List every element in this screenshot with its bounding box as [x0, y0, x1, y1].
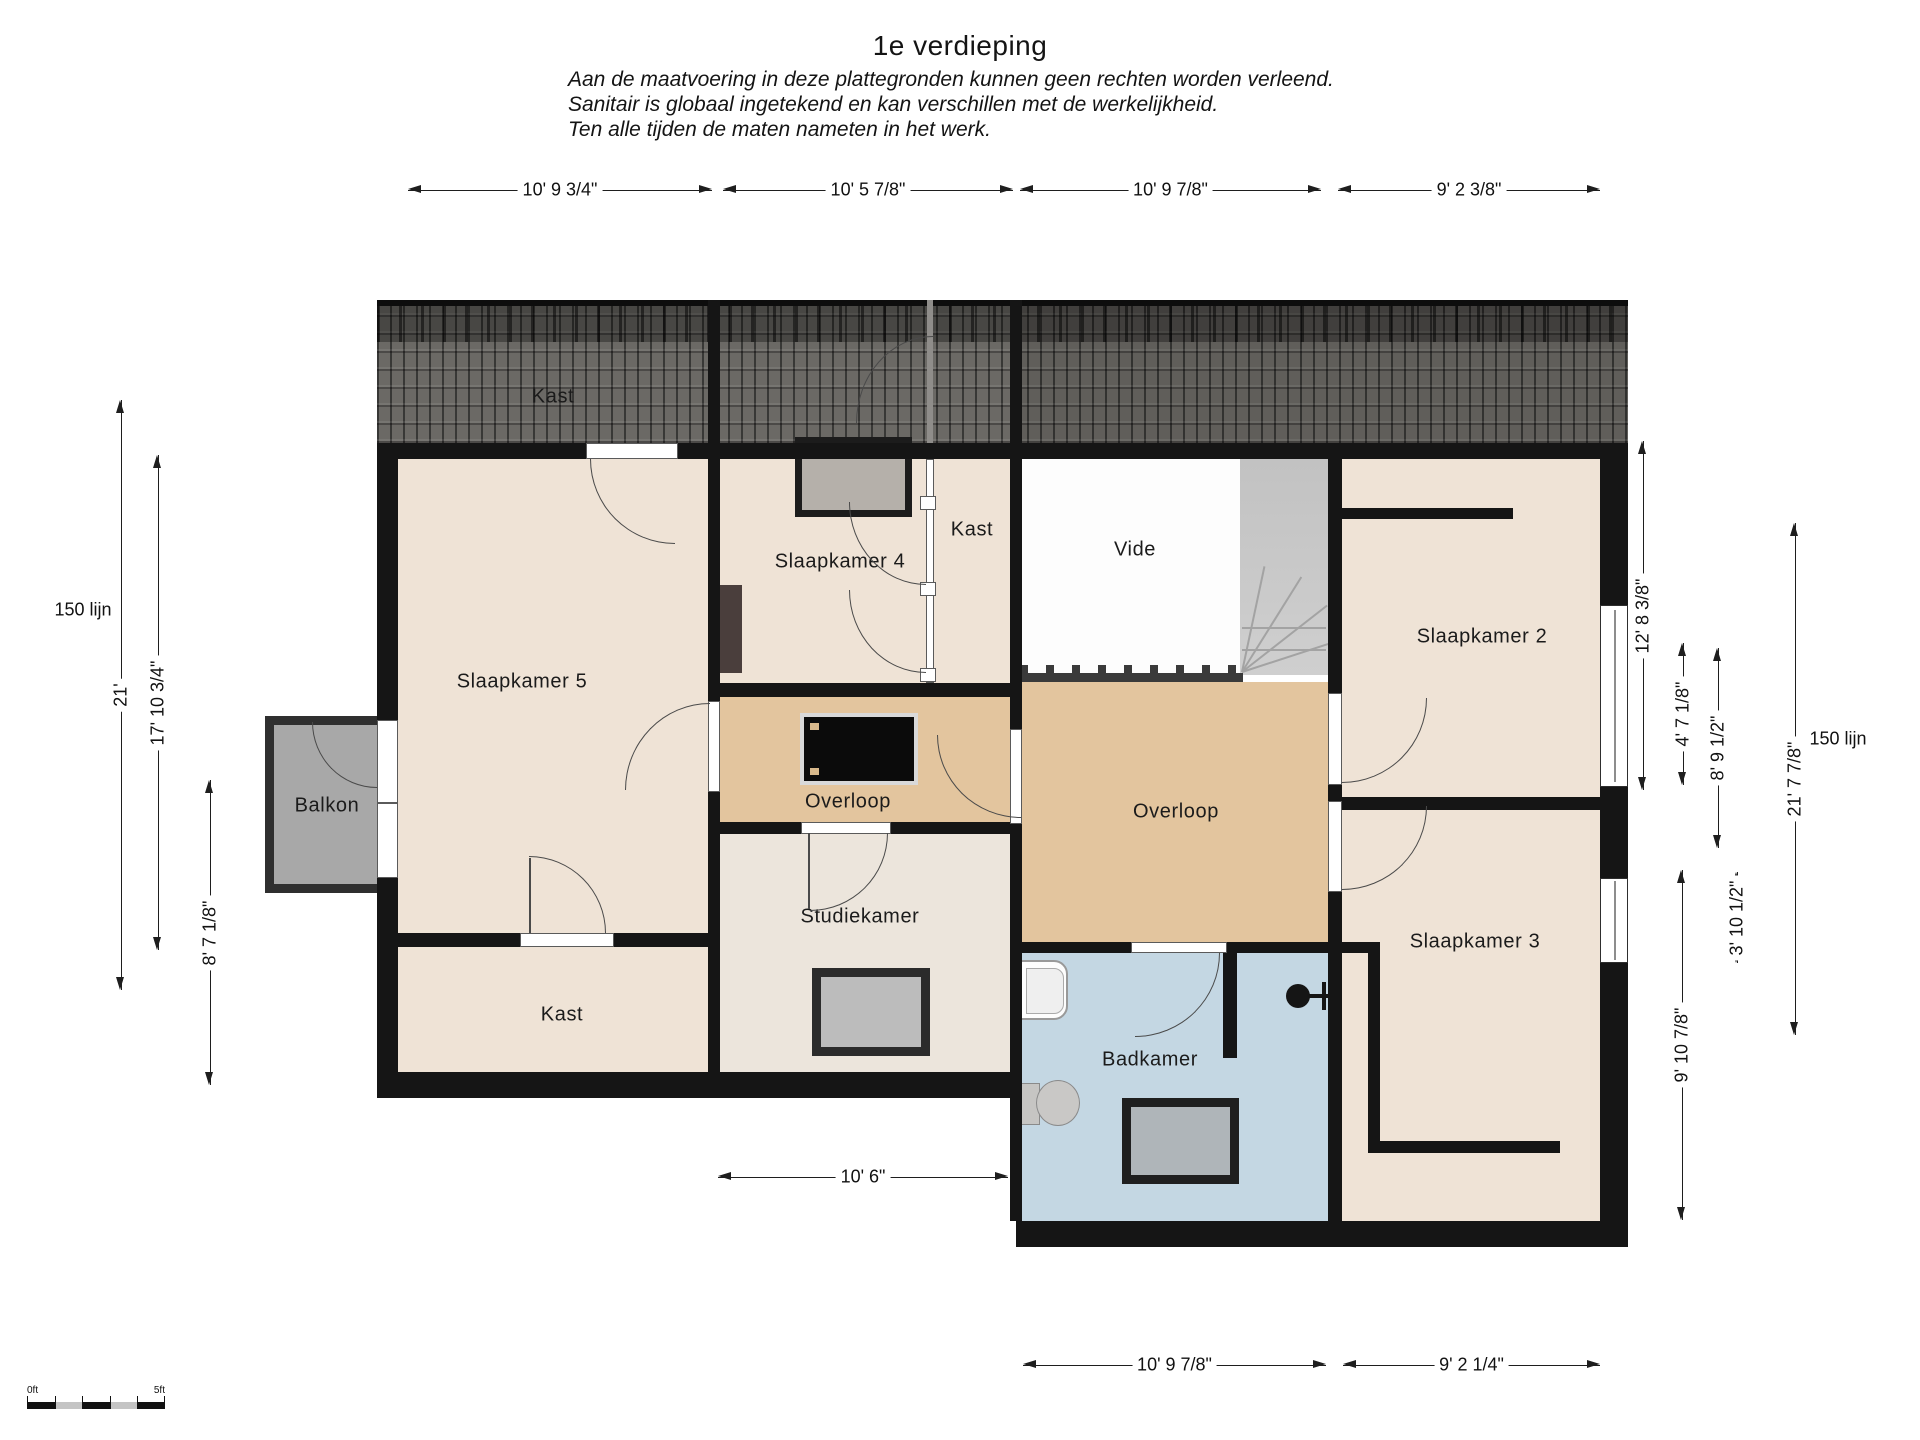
dimension-label: 10' 9 3/4" — [518, 180, 603, 201]
stairs — [1240, 459, 1328, 675]
dimension-label: 10' 5 7/8" — [826, 180, 911, 201]
scale-bar-segment — [27, 1402, 55, 1409]
balcony-door-panel — [377, 803, 398, 878]
dimension-label: 10' 6" — [836, 1167, 891, 1188]
scale-bar: 0ft 5ft — [27, 1385, 165, 1413]
bathtub-basin — [1026, 968, 1064, 1014]
right-150-lijn-label: 150 lijn — [1809, 729, 1866, 750]
scale-bar-tick — [55, 1396, 56, 1409]
label-roof-closet: Kast — [532, 386, 574, 409]
wall — [708, 683, 1016, 697]
dimension-label: 8' 9 1/2" — [1708, 711, 1729, 786]
wall — [377, 443, 1628, 459]
tv-knob — [810, 723, 819, 730]
glass-partition — [926, 459, 934, 683]
dimension-label: 21' 7 7/8" — [1785, 737, 1806, 822]
roof-ridge — [377, 300, 1628, 342]
dimension-label: 8' 7 1/8" — [200, 895, 221, 970]
study-rug — [812, 968, 930, 1056]
dimension-label: 10' 9 7/8" — [1128, 180, 1213, 201]
dimension-label: 9' 2 1/4" — [1434, 1355, 1509, 1376]
label-bathroom: Badkamer — [1102, 1049, 1198, 1072]
dimension-l1: 21' — [112, 400, 130, 990]
window-bedroom3 — [1600, 878, 1628, 963]
floorplan-canvas: 1e verdieping Aan de maatvoering in deze… — [0, 0, 1920, 1440]
room-closet-top — [934, 459, 1010, 683]
dimension-b3: 9' 2 1/4" — [1343, 1356, 1600, 1374]
railing-post — [1228, 665, 1236, 673]
dimension-t3: 10' 9 7/8" — [1020, 181, 1321, 199]
wall — [1600, 443, 1628, 1247]
scale-bar-tick — [82, 1396, 83, 1409]
railing-post — [1150, 665, 1158, 673]
shower-bar — [1322, 982, 1326, 1010]
disclaimer-line-3: Ten alle tijden de maten nameten in het … — [568, 117, 1334, 142]
label-bedroom3: Slaapkamer 3 — [1410, 931, 1541, 954]
wall — [1368, 1141, 1560, 1153]
dimension-r4: 21' 7 7/8" — [1786, 523, 1804, 1035]
door-frame-bedroom2 — [1328, 693, 1342, 785]
dimension-label: 21' — [111, 678, 132, 711]
label-bedroom5: Slaapkamer 5 — [457, 671, 588, 694]
label-void: Vide — [1114, 539, 1156, 562]
dimension-label: 4' 7 1/8" — [1673, 677, 1694, 752]
disclaimer-line-1: Aan de maatvoering in deze plattegronden… — [568, 67, 1334, 92]
scale-bar-segment — [55, 1402, 83, 1409]
dimension-r3: 8' 9 1/2" — [1709, 648, 1727, 848]
dimension-label: 12' 8 3/8" — [1633, 573, 1654, 658]
window-bedroom2 — [1600, 605, 1628, 787]
wall — [1010, 300, 1022, 443]
dimension-label: 3' 10 1/2" — [1727, 875, 1748, 960]
dimension-r1: 12' 8 3/8" — [1634, 441, 1652, 790]
label-closet-top: Kast — [951, 519, 993, 542]
dimension-t2: 10' 5 7/8" — [723, 181, 1013, 199]
label-balcony: Balkon — [295, 795, 360, 818]
dimension-b2: 10' 9 7/8" — [1023, 1356, 1326, 1374]
door-frame-bedroom5-top — [586, 443, 678, 459]
scale-bar-tick — [27, 1396, 28, 1409]
scale-bar-tick — [164, 1396, 165, 1409]
railing-post — [1176, 665, 1184, 673]
door-frame-bedroom5-bottom — [520, 933, 614, 947]
bathroom-rug — [1122, 1098, 1239, 1184]
bathtub — [1018, 960, 1068, 1020]
wall — [1368, 943, 1380, 1153]
dimension-l3: 8' 7 1/8" — [201, 780, 219, 1085]
scale-bar-tick — [110, 1396, 111, 1409]
wall — [1010, 443, 1022, 1221]
dimension-l2: 17' 10 3/4" — [149, 455, 167, 950]
shower-icon — [1286, 984, 1310, 1008]
door-frame-bedroom3 — [1328, 801, 1342, 892]
label-closet-bottom: Kast — [541, 1004, 583, 1027]
railing-post — [1072, 665, 1080, 673]
dimension-r5: 3' 10 1/2" — [1728, 872, 1746, 963]
page-title: 1e verdieping — [0, 30, 1920, 62]
label-landing-right: Overloop — [1133, 801, 1219, 824]
dimension-r2: 4' 7 1/8" — [1674, 643, 1692, 785]
label-bedroom2: Slaapkamer 2 — [1417, 626, 1548, 649]
tv-knob — [810, 768, 819, 775]
dimension-label: 17' 10 3/4" — [148, 655, 169, 750]
balcony-door-panel — [377, 720, 398, 803]
door-leaf — [808, 833, 810, 909]
tv-cabinet — [800, 713, 918, 785]
railing-post — [1098, 665, 1106, 673]
door-frame-bathroom — [1131, 942, 1227, 953]
scale-start-label: 0ft — [27, 1385, 38, 1396]
wall — [377, 1072, 1022, 1098]
disclaimer-line-2: Sanitair is globaal ingetekend en kan ve… — [568, 92, 1334, 117]
void-railing — [1020, 673, 1243, 682]
stair-tread — [1242, 649, 1326, 651]
scale-bar-segment — [137, 1402, 165, 1409]
dimension-r6: 9' 10 7/8" — [1673, 870, 1691, 1220]
scale-end-label: 5ft — [154, 1385, 165, 1396]
scale-bar-tick — [137, 1396, 138, 1409]
room-void — [1022, 459, 1240, 673]
dimension-label: 9' 10 7/8" — [1672, 1003, 1693, 1088]
dimension-t4: 9' 2 3/8" — [1338, 181, 1600, 199]
railing-post — [1046, 665, 1054, 673]
wall — [1342, 508, 1513, 519]
toilet-bowl — [1036, 1080, 1080, 1126]
dimension-label: 9' 2 3/8" — [1432, 180, 1507, 201]
wall — [1223, 945, 1237, 1058]
railing-post — [1124, 665, 1132, 673]
dimension-label: 10' 9 7/8" — [1132, 1355, 1217, 1376]
scale-bar-segment — [110, 1402, 138, 1409]
disclaimer-text: Aan de maatvoering in deze plattegronden… — [568, 67, 1334, 142]
dimension-t1: 10' 9 3/4" — [408, 181, 712, 199]
door-leaf — [529, 858, 531, 933]
dimension-b1: 10' 6" — [718, 1168, 1008, 1186]
scale-bar-segment — [82, 1402, 110, 1409]
wall — [1016, 1221, 1628, 1247]
wall — [708, 300, 720, 443]
label-landing-left: Overloop — [805, 791, 891, 814]
left-150-lijn-label: 150 lijn — [54, 600, 111, 621]
stair-tread — [1242, 627, 1326, 629]
railing-post — [1202, 665, 1210, 673]
